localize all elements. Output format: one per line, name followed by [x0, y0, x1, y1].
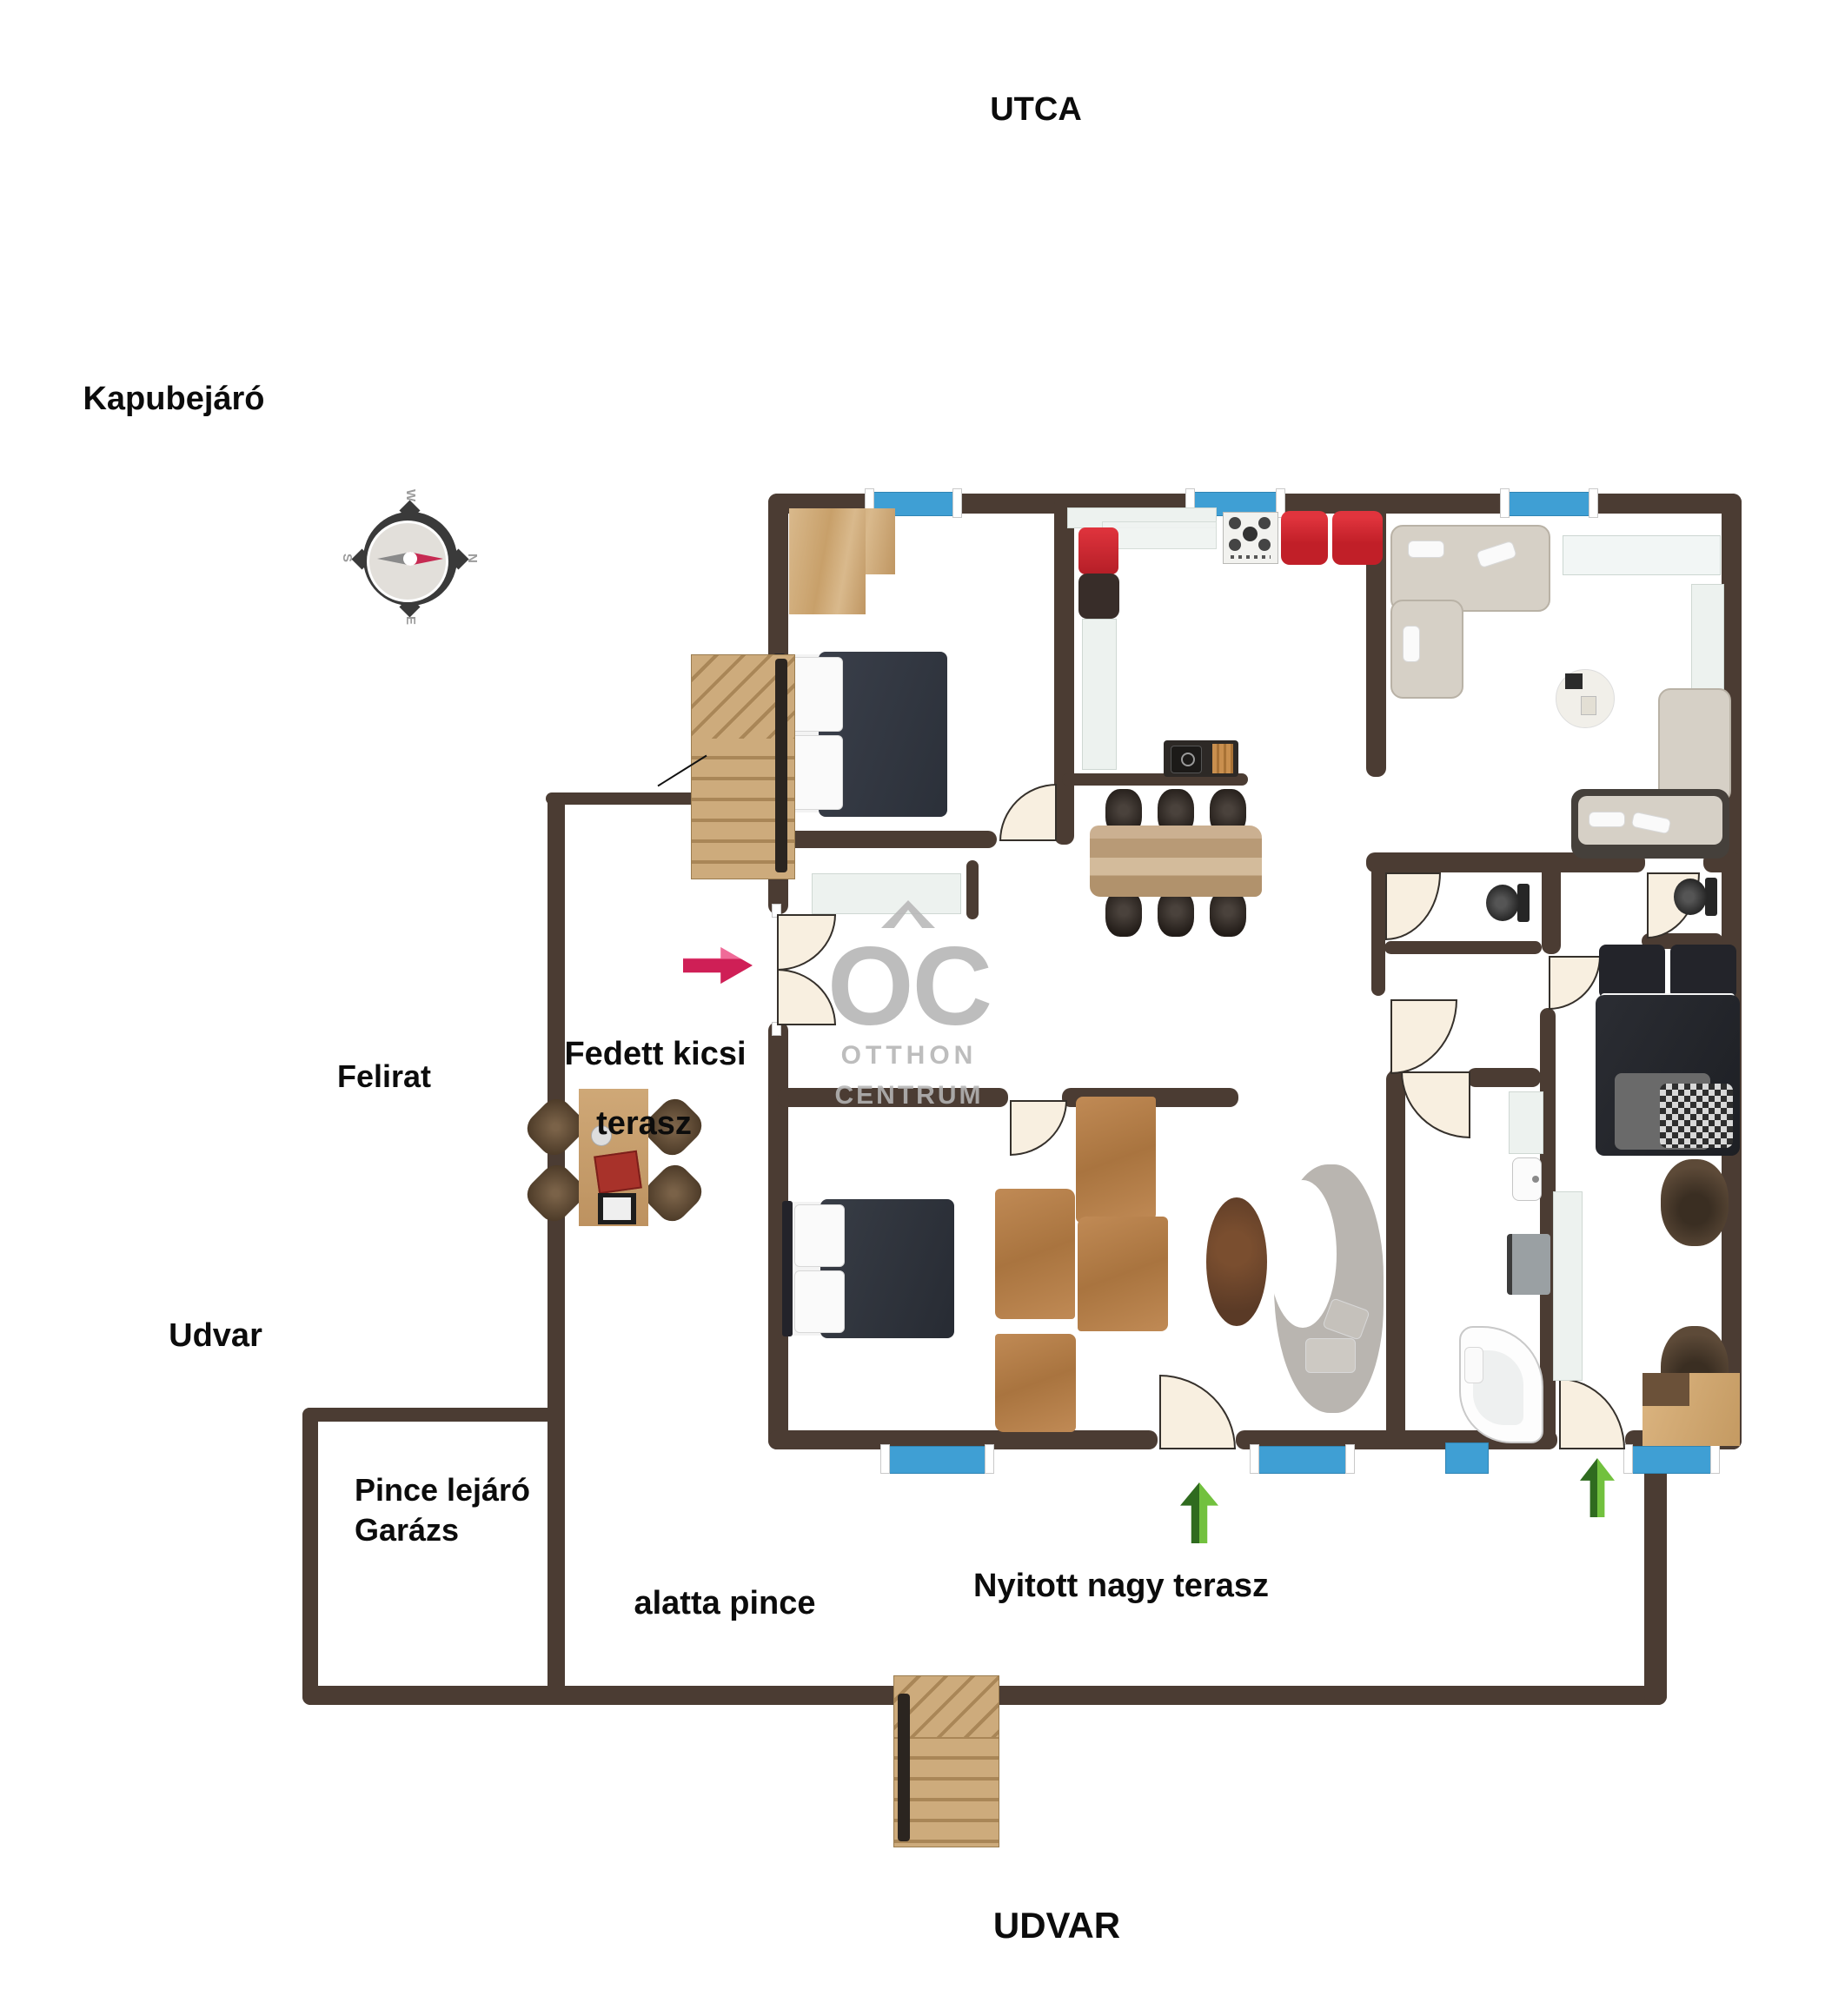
garage-left-wall — [302, 1408, 318, 1705]
floor-plan: N S W E OC OTTHON CENTRUM UTCA Kapubejár… — [0, 0, 1825, 2016]
staircase — [893, 1675, 999, 1847]
wc1-bottom-stub — [1384, 941, 1542, 954]
label-alatta-pince: alatta pince — [634, 1585, 815, 1622]
watermark-line1: OTTHON — [841, 1041, 978, 1071]
label-garazs: Garázs — [355, 1512, 459, 1548]
window-icon — [1506, 492, 1592, 516]
compass-rose-icon: N S W E — [349, 498, 471, 620]
watermark-line2: CENTRUM — [835, 1081, 984, 1111]
bathroom-top-wall-b — [1467, 1068, 1541, 1087]
jamb-mark — [1345, 1444, 1355, 1474]
standing-mirror — [1553, 1191, 1583, 1381]
jamb-mark — [1500, 488, 1510, 518]
bed — [773, 652, 947, 817]
dining-table — [1090, 826, 1262, 897]
window-icon — [1629, 1446, 1714, 1474]
bedroom1-door — [999, 784, 1057, 841]
jamb-mark — [952, 488, 962, 518]
window-icon — [886, 1446, 988, 1474]
kitchen-tall-cabinet — [1082, 619, 1117, 770]
wc-divider-wall — [1542, 852, 1561, 954]
stove-icon — [1223, 512, 1278, 564]
curved-lounge-sofa — [1274, 1164, 1384, 1413]
washing-machine — [1507, 1234, 1550, 1295]
bedroom2-door — [1010, 1100, 1067, 1156]
bathtub — [1459, 1326, 1543, 1443]
pink-right-arrow-icon — [683, 945, 753, 985]
kitchen-hood — [1102, 521, 1217, 549]
window-icon — [1445, 1442, 1489, 1474]
bathroom-cabinet — [1509, 1091, 1543, 1154]
label-udvar-bottom: UDVAR — [993, 1905, 1120, 1946]
desk-panel — [1076, 1097, 1156, 1223]
sofa-sectional — [1571, 789, 1729, 859]
terrace-chair — [639, 1158, 707, 1227]
bathroom-door — [1401, 1071, 1470, 1138]
sofa-sectional — [1658, 688, 1731, 803]
kitchen-cabinet-red — [1078, 527, 1118, 574]
label-utca: UTCA — [990, 91, 1082, 129]
tv-console — [1563, 535, 1721, 575]
dining-chair — [1105, 890, 1142, 937]
kitchen-red-unit — [1332, 511, 1383, 565]
jamb-mark — [985, 1444, 994, 1474]
corridor-left-wall — [1386, 1071, 1405, 1449]
area-rug — [1556, 669, 1615, 728]
label-terasz: terasz — [596, 1105, 692, 1143]
terrace-right-wall — [1644, 1449, 1667, 1705]
kitchen-red-unit — [1281, 511, 1328, 565]
desk-panel — [995, 1334, 1076, 1432]
kitchen-cabinet-dark — [1078, 574, 1119, 619]
closet-cabinet — [812, 873, 961, 914]
garage-top-wall — [302, 1408, 565, 1422]
jamb-mark — [880, 1444, 890, 1474]
window-icon — [1256, 1446, 1349, 1474]
bed — [1596, 943, 1740, 1156]
desk-panel — [1078, 1217, 1168, 1331]
label-nyitott-nagy-terasz: Nyitott nagy terasz — [973, 1568, 1269, 1605]
watermark-initials: OC — [827, 923, 991, 1051]
compass-label-n: N — [465, 554, 480, 563]
kitchen-divider-wall — [1054, 495, 1074, 845]
wc1-left-wall — [1371, 852, 1385, 996]
corner-desk — [1642, 1373, 1740, 1446]
compass-label-e: E — [403, 616, 418, 625]
desk-panel — [995, 1189, 1075, 1319]
dining-chair — [1158, 890, 1194, 937]
bathroom-sink — [1512, 1157, 1542, 1201]
compass-label-s: S — [340, 554, 355, 562]
bedroom1-bottom-wall — [768, 831, 997, 848]
wardrobe — [789, 508, 866, 614]
label-kapubejaro: Kapubejáró — [83, 381, 264, 418]
terrace-door-1 — [1159, 1375, 1236, 1449]
wc1-door — [1385, 872, 1441, 940]
terrace-left-wall — [547, 792, 565, 1705]
label-udvar-left: Udvar — [169, 1317, 262, 1355]
staircase — [691, 654, 795, 879]
sideboard — [1691, 584, 1724, 693]
green-up-arrow-icon — [1180, 1482, 1218, 1543]
sofa-pillow — [1403, 626, 1420, 662]
corridor-door — [1390, 999, 1457, 1074]
bedroom-right-door — [1549, 956, 1601, 1010]
sofa-sectional — [1390, 600, 1463, 699]
armchair — [1661, 1159, 1729, 1246]
label-fedett-kicsi: Fedett kicsi — [564, 1036, 746, 1073]
label-felirat: Felirat — [337, 1058, 431, 1095]
sofa-pillow — [1408, 540, 1444, 558]
coffee-table-oval — [1206, 1197, 1267, 1326]
kitchen-island-sink — [1164, 740, 1238, 777]
bed — [782, 1199, 954, 1338]
jamb-mark — [1589, 488, 1598, 518]
dining-chair — [1210, 890, 1246, 937]
jamb-mark — [1250, 1444, 1259, 1474]
sofa-sectional — [1390, 525, 1550, 612]
closet-stub-wall — [966, 860, 979, 919]
compass-label-w: W — [403, 489, 418, 501]
label-pince-lejaro: Pince lejáró — [355, 1472, 530, 1509]
jamb-mark — [1710, 1444, 1720, 1474]
terrace-door-2 — [1559, 1378, 1625, 1449]
green-up-arrow-icon — [1580, 1458, 1615, 1517]
